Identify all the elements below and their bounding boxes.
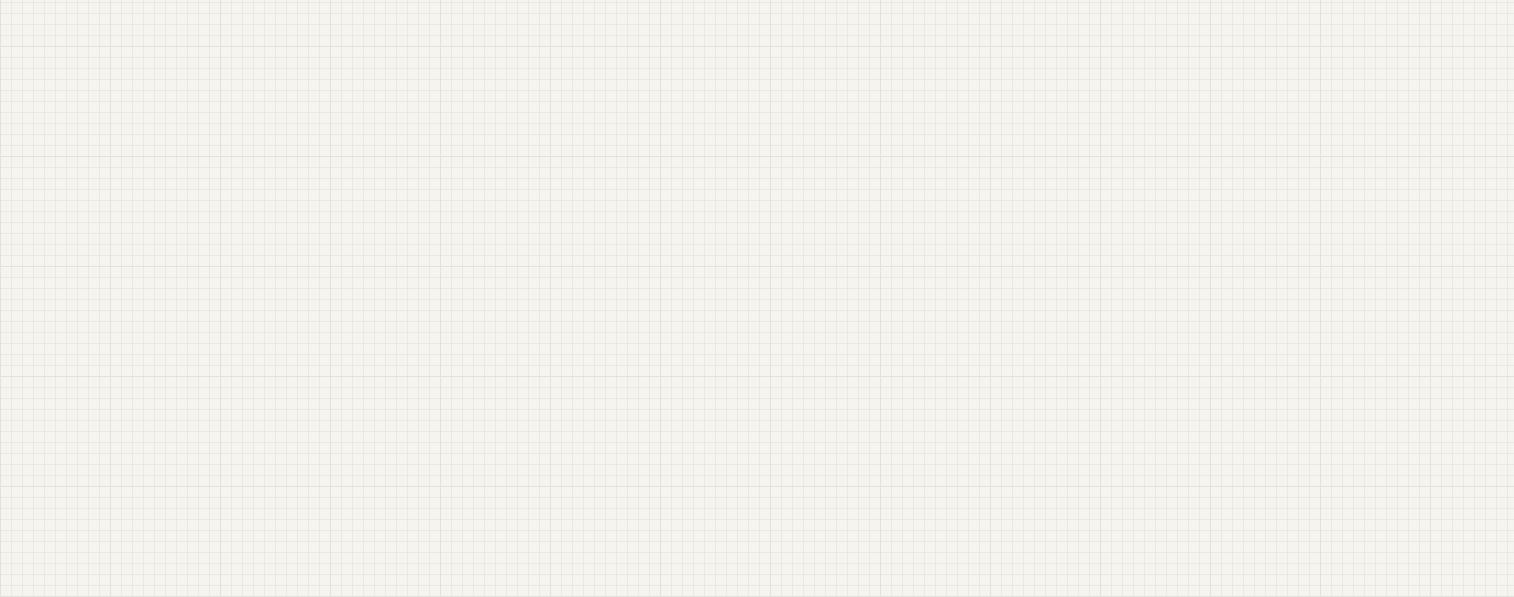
power-supply-schematic[interactable] [0, 0, 1514, 597]
schematic-sheet [0, 0, 1514, 597]
